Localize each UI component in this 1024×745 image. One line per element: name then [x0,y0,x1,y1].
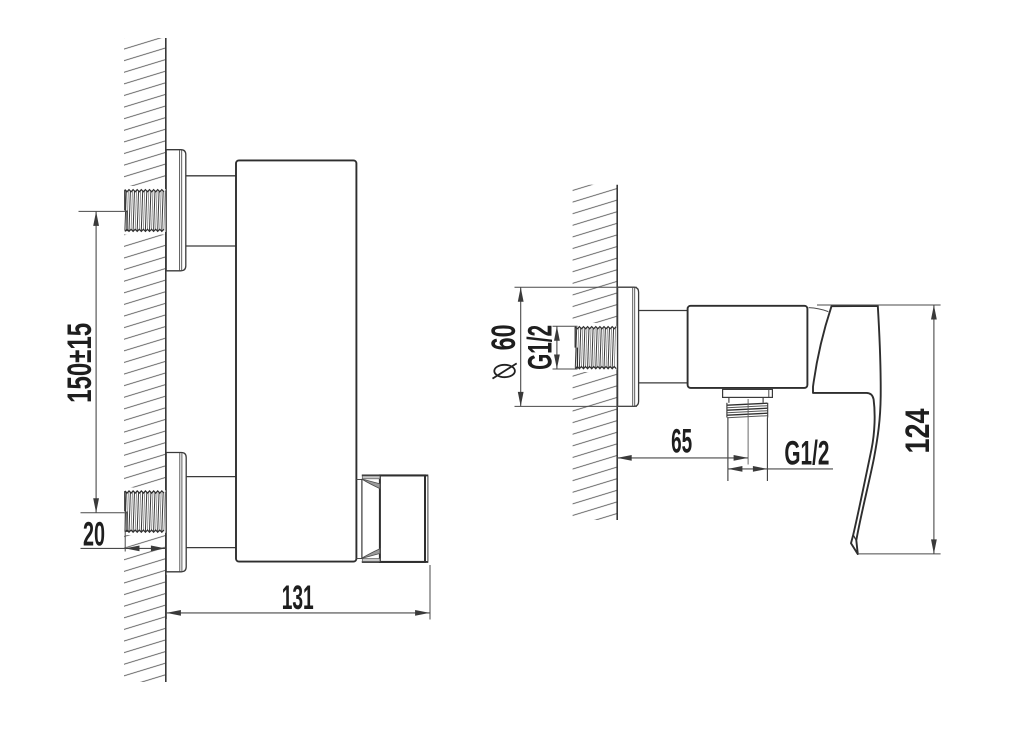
svg-text:G1/2: G1/2 [522,325,560,370]
svg-text:20: 20 [83,516,105,554]
svg-text:65: 65 [671,423,692,461]
svg-text:124: 124 [899,408,937,453]
svg-text:60: 60 [485,324,523,350]
svg-text:G1/2: G1/2 [784,435,829,473]
svg-text:150±15: 150±15 [61,323,99,403]
svg-text:131: 131 [282,579,314,617]
